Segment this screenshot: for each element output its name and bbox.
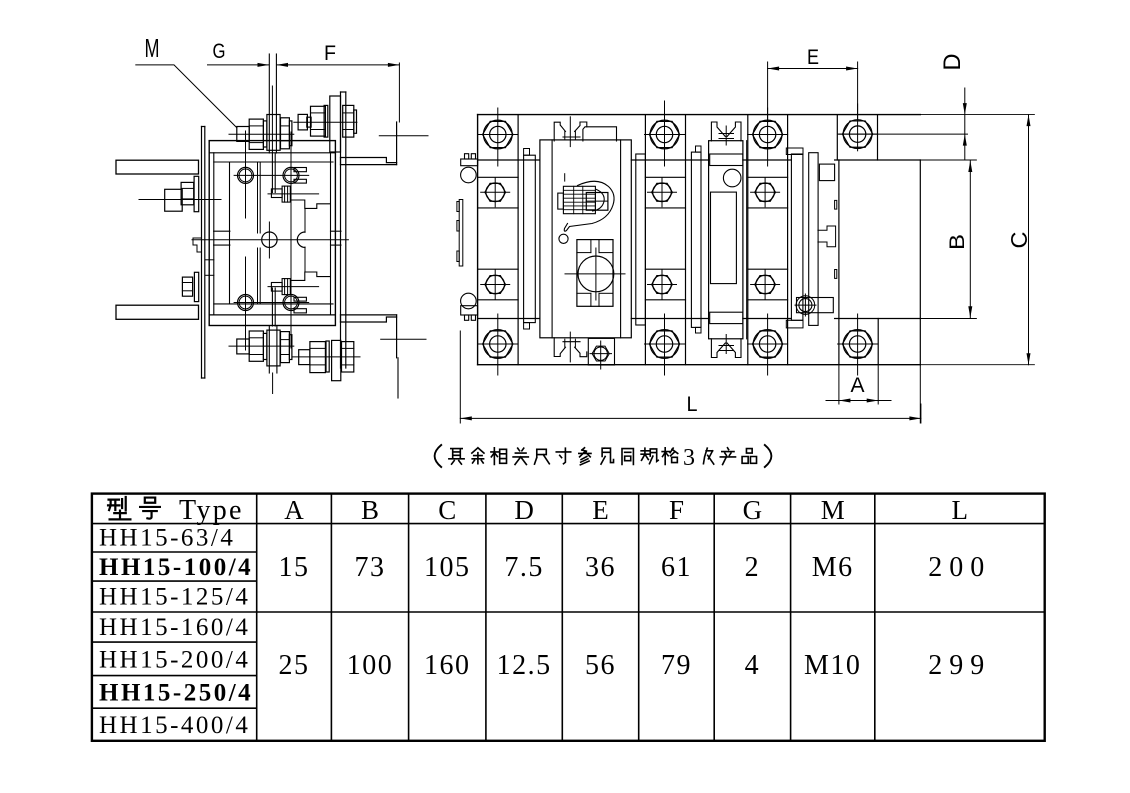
svg-text:F: F bbox=[669, 495, 684, 525]
svg-text:HH15-400/4: HH15-400/4 bbox=[99, 712, 250, 739]
svg-text:200: 200 bbox=[928, 552, 991, 583]
svg-text:M10: M10 bbox=[804, 650, 861, 681]
svg-text:HH15-63/4: HH15-63/4 bbox=[99, 525, 235, 552]
svg-text:HH15-160/4: HH15-160/4 bbox=[99, 614, 250, 641]
svg-text:HH15-100/4: HH15-100/4 bbox=[99, 554, 253, 581]
svg-text:36: 36 bbox=[585, 552, 616, 583]
svg-text:M: M bbox=[821, 495, 845, 525]
svg-text:A: A bbox=[851, 374, 865, 397]
svg-text:79: 79 bbox=[661, 650, 692, 681]
svg-text:L: L bbox=[952, 495, 969, 525]
svg-text:C: C bbox=[438, 495, 456, 525]
svg-text:4: 4 bbox=[745, 650, 761, 681]
svg-text:3: 3 bbox=[683, 445, 695, 471]
svg-text:M: M bbox=[145, 33, 160, 63]
svg-text:12.5: 12.5 bbox=[497, 650, 552, 681]
svg-text:E: E bbox=[592, 495, 609, 525]
svg-text:A: A bbox=[284, 495, 304, 525]
svg-text:L: L bbox=[687, 393, 698, 416]
svg-text:B: B bbox=[946, 234, 969, 250]
svg-text:25: 25 bbox=[279, 650, 310, 681]
svg-text:105: 105 bbox=[424, 552, 471, 583]
svg-text:G: G bbox=[743, 495, 763, 525]
svg-text:HH15-125/4: HH15-125/4 bbox=[99, 584, 250, 611]
svg-text:G: G bbox=[213, 40, 226, 63]
svg-text:299: 299 bbox=[928, 650, 991, 681]
svg-text:Type: Type bbox=[179, 495, 244, 526]
svg-text:E: E bbox=[807, 46, 819, 69]
svg-text:M6: M6 bbox=[812, 552, 854, 583]
svg-text:15: 15 bbox=[279, 552, 310, 583]
svg-text:100: 100 bbox=[347, 650, 394, 681]
svg-text:D: D bbox=[939, 54, 966, 71]
svg-text:F: F bbox=[324, 42, 336, 65]
svg-text:2: 2 bbox=[745, 552, 761, 583]
svg-text:61: 61 bbox=[661, 552, 692, 583]
svg-text:73: 73 bbox=[355, 552, 386, 583]
svg-text:7.5: 7.5 bbox=[504, 552, 544, 583]
svg-text:160: 160 bbox=[424, 650, 471, 681]
svg-text:56: 56 bbox=[585, 650, 616, 681]
svg-text:B: B bbox=[361, 495, 379, 525]
svg-text:HH15-250/4: HH15-250/4 bbox=[99, 680, 253, 707]
svg-text:D: D bbox=[514, 495, 534, 525]
svg-text:HH15-200/4: HH15-200/4 bbox=[99, 647, 250, 674]
